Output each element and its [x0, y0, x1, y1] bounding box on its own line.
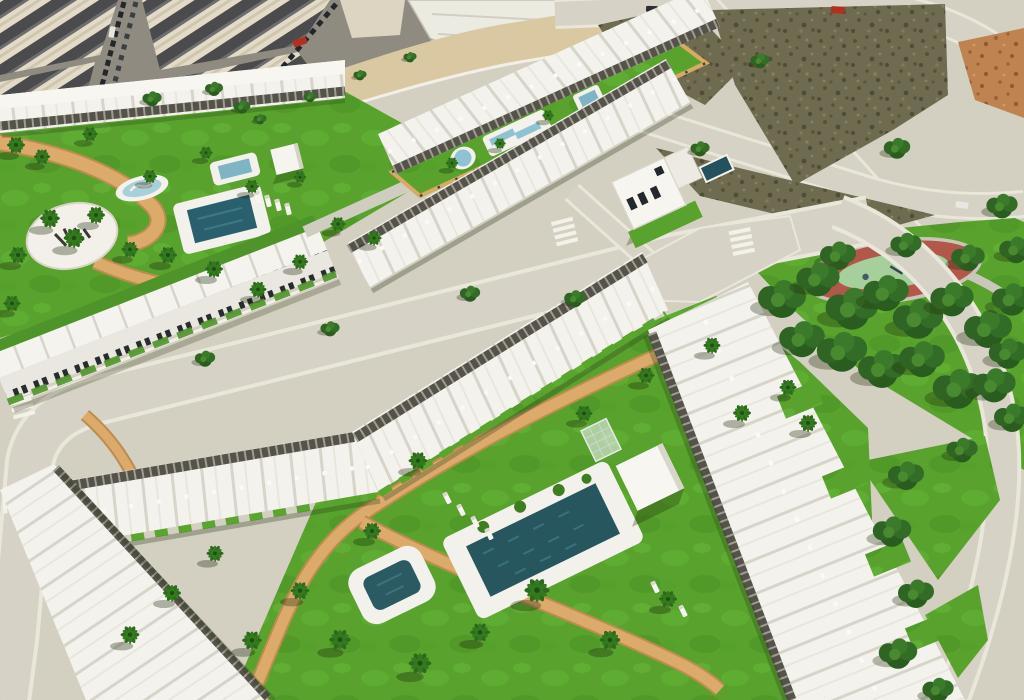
scene-canvas: Aerial 3D visualisation of a coastal res…: [0, 0, 1024, 700]
aerial-development-render: Aerial 3D visualisation of a coastal res…: [0, 0, 1024, 700]
red-car: [831, 6, 845, 14]
screenshot-stage: Aerial 3D visualisation of a coastal res…: [0, 0, 1024, 700]
